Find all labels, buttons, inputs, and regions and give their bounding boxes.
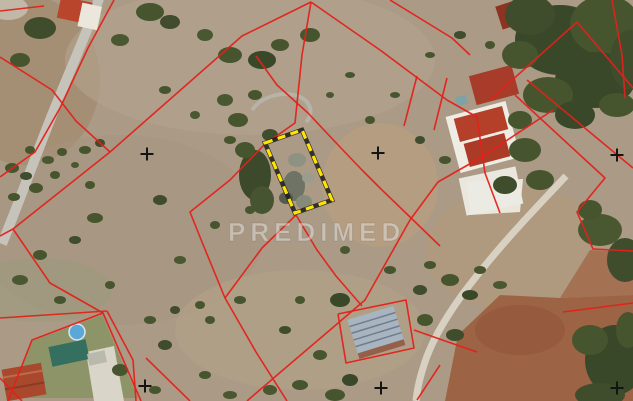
aerial-cadastral-map[interactable]: PREDIMED: [0, 0, 633, 401]
watermark-text: PREDIMED: [228, 217, 405, 247]
map-canvas: PREDIMED: [0, 0, 633, 401]
swimming-pool: [69, 324, 85, 340]
